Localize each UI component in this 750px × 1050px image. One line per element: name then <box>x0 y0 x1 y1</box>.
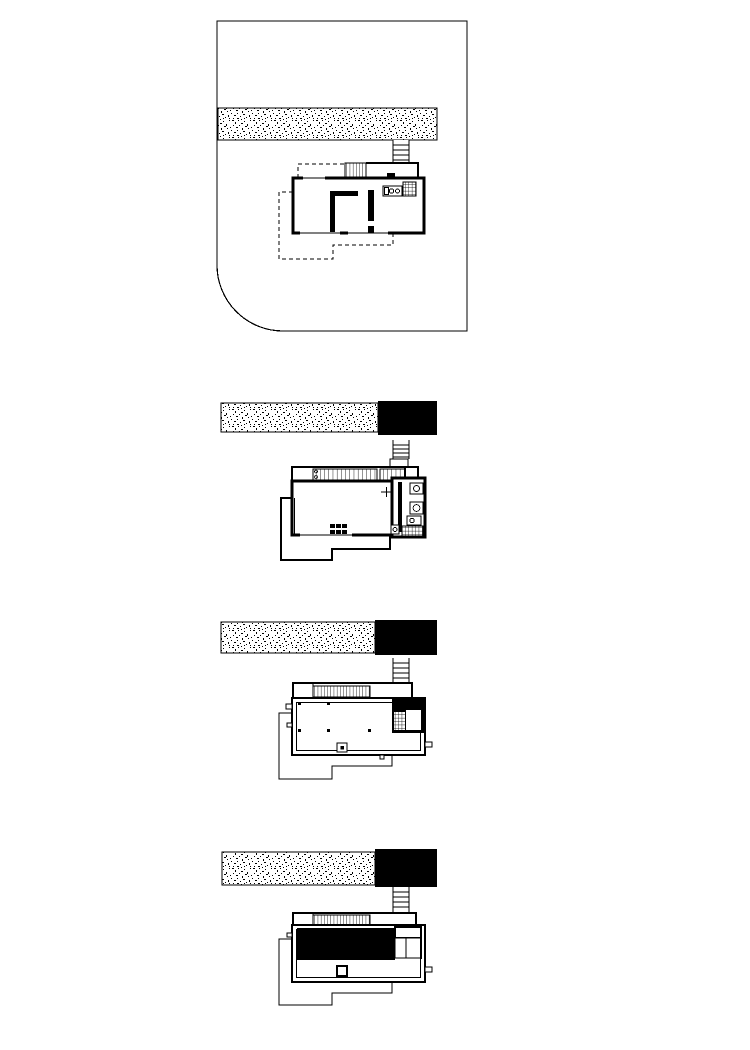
architectural-drawing-sheet <box>0 0 750 1050</box>
entry-steps <box>390 440 409 467</box>
entry-steps <box>393 658 409 686</box>
stair-hatch <box>345 163 366 178</box>
gravel-road-band <box>218 108 437 140</box>
stair-hatch <box>313 686 370 697</box>
kitchen-fixtures <box>383 186 402 196</box>
gravel-road-band <box>221 403 378 432</box>
tile-grid <box>403 182 416 196</box>
tile-grid <box>394 712 406 731</box>
entry-steps <box>393 140 409 163</box>
carport-slab <box>375 620 437 655</box>
roof-service-boxes <box>395 926 421 959</box>
roof-slab <box>297 928 395 960</box>
carport-slab <box>378 401 437 435</box>
carport-slab <box>375 849 437 887</box>
stair-hatch <box>313 915 370 925</box>
roof-hatch-square <box>337 966 347 976</box>
skylight <box>337 743 347 752</box>
stair-hatch <box>313 469 377 480</box>
entry-steps <box>393 887 409 913</box>
gravel-road-band <box>222 852 375 885</box>
gravel-road-band <box>221 622 375 653</box>
stair-landing <box>390 459 408 467</box>
tile-grid <box>402 526 423 536</box>
core-room <box>406 710 421 730</box>
